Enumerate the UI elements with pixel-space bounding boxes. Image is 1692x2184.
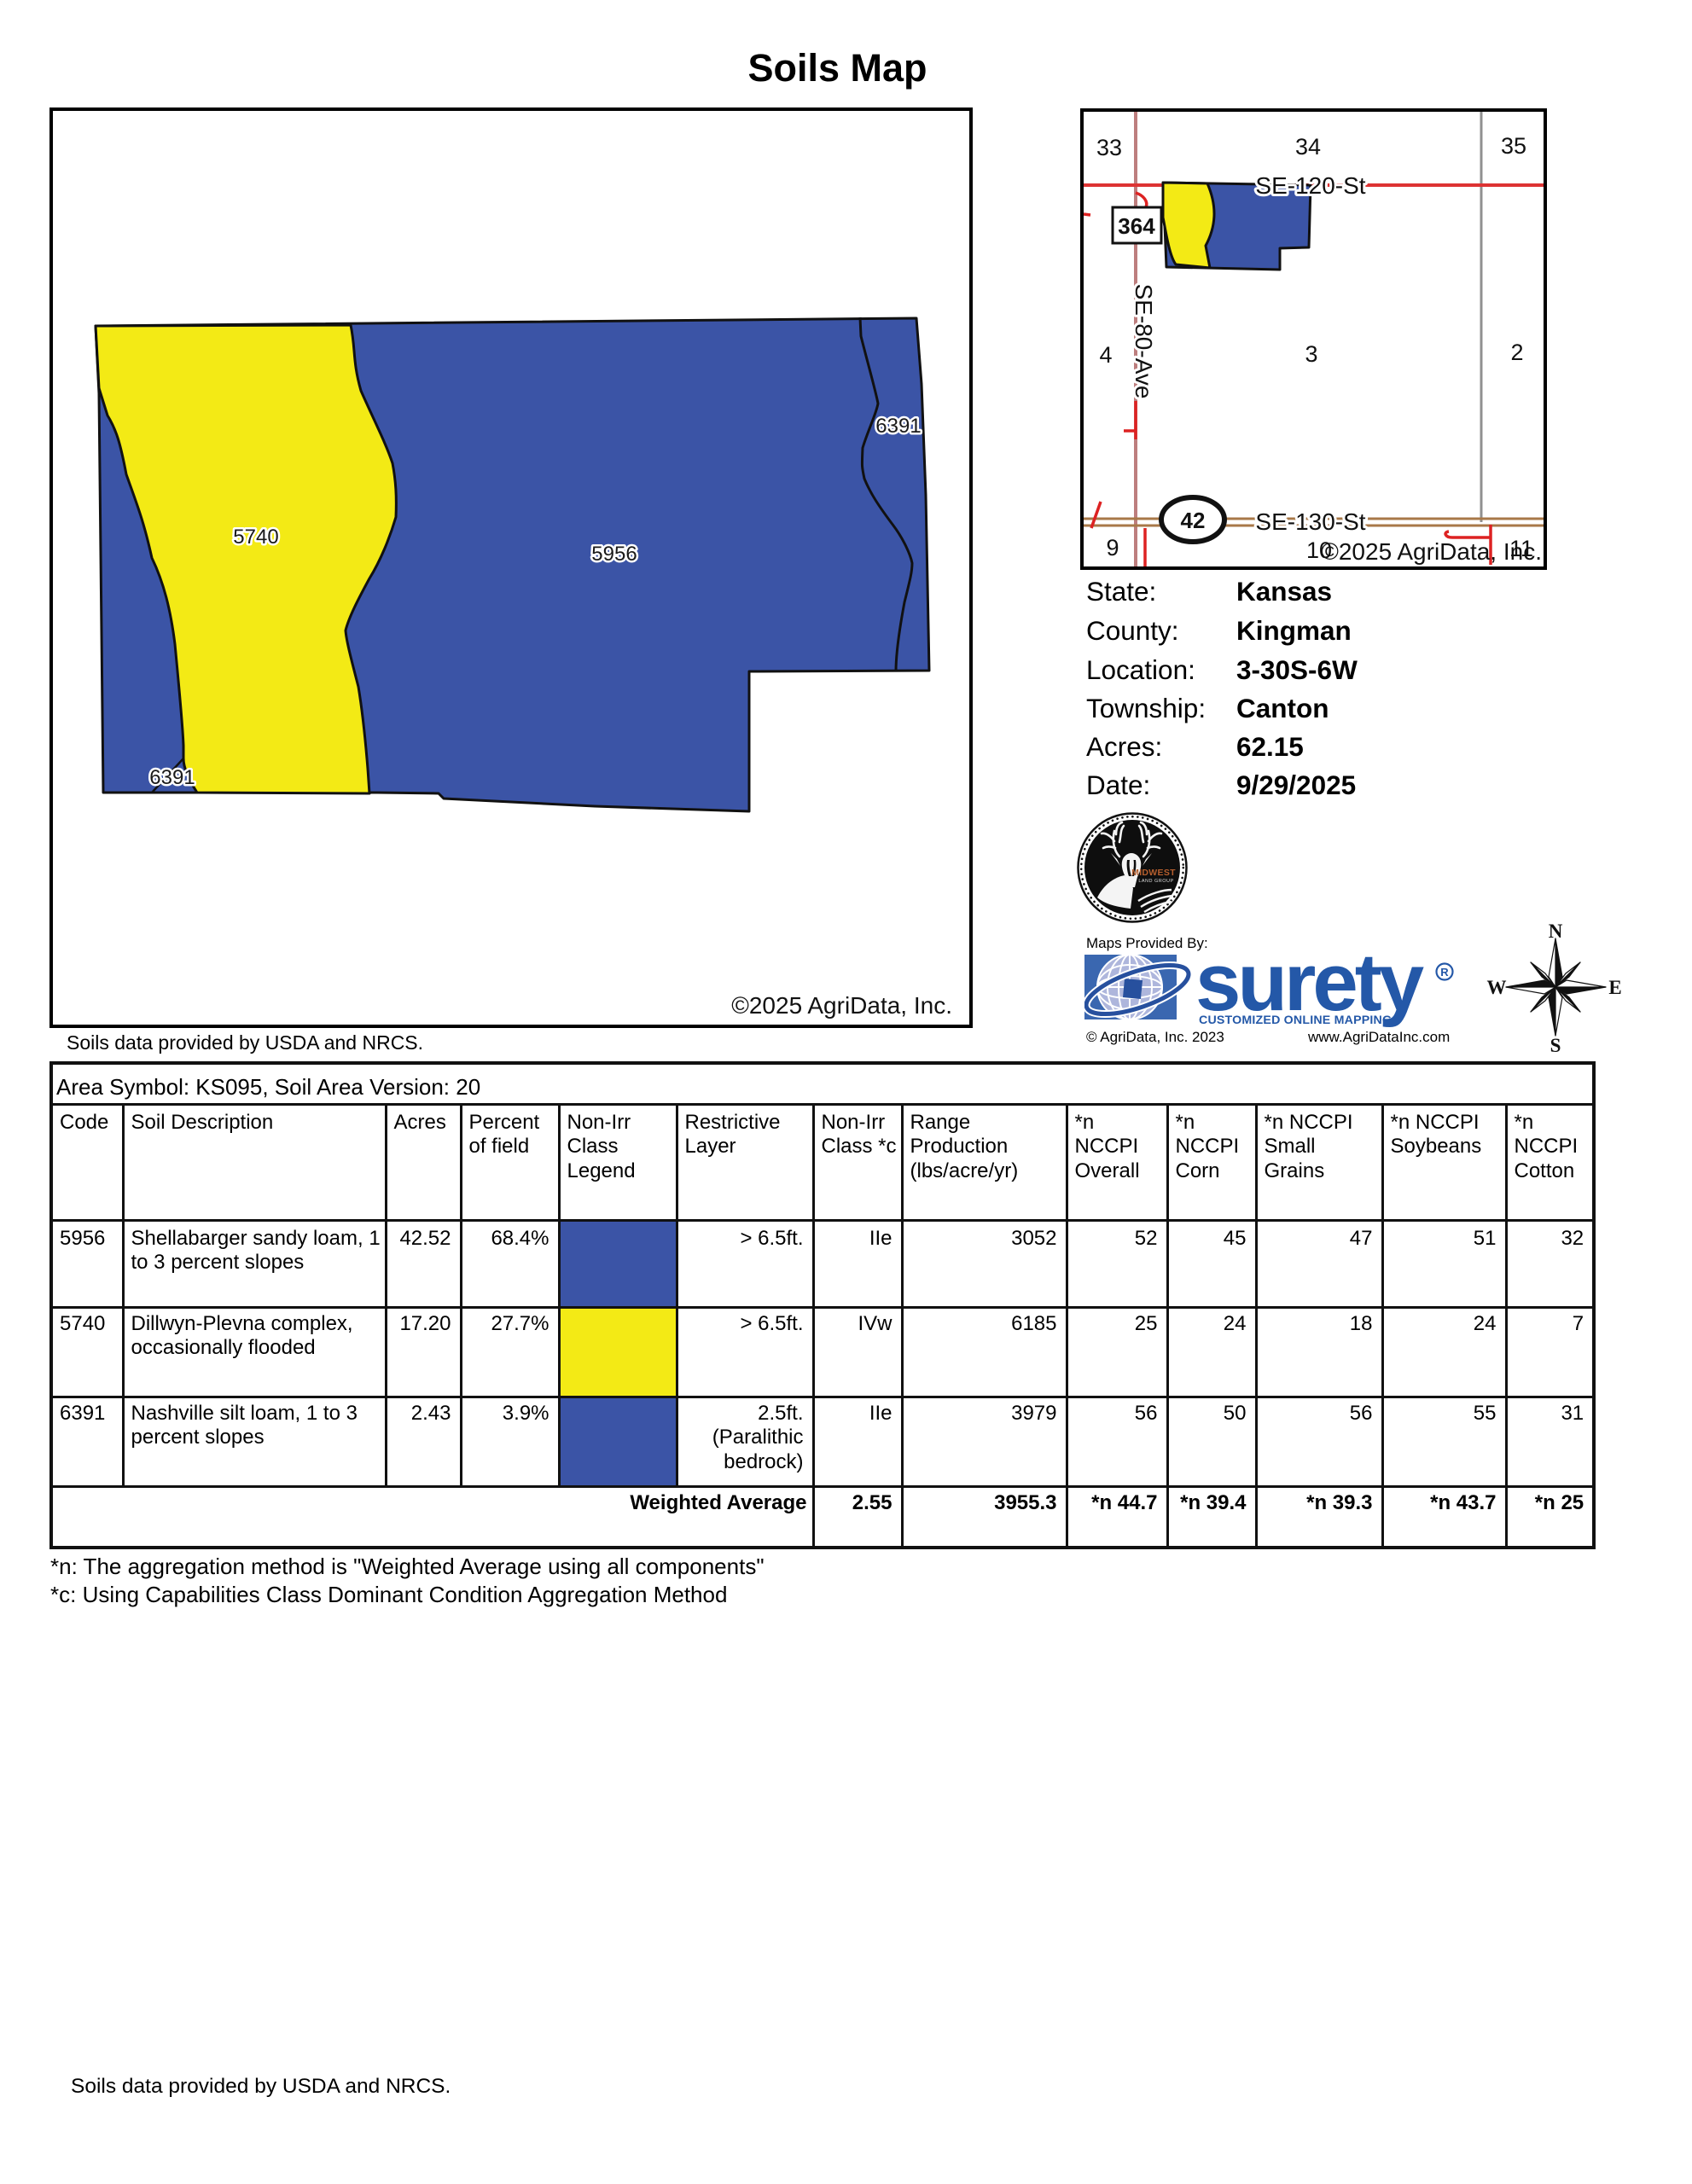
svg-text:©2025 AgriData, Inc.: ©2025 AgriData, Inc. bbox=[731, 992, 952, 1019]
svg-text:4: 4 bbox=[1099, 342, 1112, 368]
svg-text:42: 42 bbox=[1181, 508, 1206, 533]
svg-text:34: 34 bbox=[1295, 134, 1321, 160]
svg-text:3: 3 bbox=[1305, 341, 1317, 367]
svg-text:©2025 AgriData, Inc.: ©2025 AgriData, Inc. bbox=[1321, 538, 1542, 565]
svg-text:E: E bbox=[1608, 977, 1621, 998]
svg-text:5956: 5956 bbox=[591, 543, 637, 566]
svg-text:S: S bbox=[1550, 1035, 1561, 1056]
svg-text:N: N bbox=[1549, 921, 1563, 942]
svg-text:33: 33 bbox=[1096, 135, 1122, 160]
svg-text:R: R bbox=[1440, 966, 1449, 979]
svg-text:SE-120-St: SE-120-St bbox=[1255, 172, 1365, 199]
svg-text:364: 364 bbox=[1118, 213, 1155, 239]
svg-text:6391: 6391 bbox=[149, 766, 195, 789]
svg-text:MIDWEST: MIDWEST bbox=[1131, 868, 1176, 878]
svg-text:SE-130-St: SE-130-St bbox=[1255, 508, 1365, 535]
svg-text:5740: 5740 bbox=[233, 526, 278, 549]
svg-text:SE-80-Ave: SE-80-Ave bbox=[1131, 284, 1157, 399]
svg-text:2: 2 bbox=[1510, 340, 1523, 365]
svg-text:LAND GROUP: LAND GROUP bbox=[1138, 879, 1173, 884]
svg-text:9: 9 bbox=[1106, 535, 1119, 561]
svg-text:35: 35 bbox=[1501, 133, 1526, 159]
svg-text:CUSTOMIZED ONLINE MAPPING: CUSTOMIZED ONLINE MAPPING bbox=[1199, 1014, 1392, 1027]
svg-text:6391: 6391 bbox=[875, 415, 921, 438]
svg-text:W: W bbox=[1487, 977, 1507, 998]
